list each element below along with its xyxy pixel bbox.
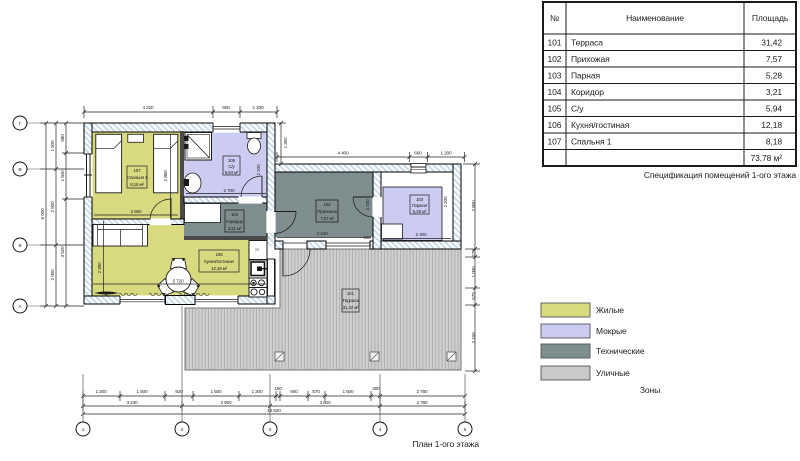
svg-text:2 380: 2 380 <box>97 262 103 274</box>
svg-text:1 200: 1 200 <box>251 389 263 395</box>
svg-text:3 440: 3 440 <box>316 231 328 237</box>
svg-text:2 400: 2 400 <box>415 232 427 238</box>
svg-text:2 200: 2 200 <box>365 199 371 211</box>
svg-text:С/у: С/у <box>571 104 584 114</box>
svg-text:980: 980 <box>60 134 66 142</box>
svg-text:Парная: Парная <box>412 203 428 208</box>
svg-text:Коридор: Коридор <box>226 219 243 224</box>
svg-text:105: 105 <box>228 158 236 163</box>
svg-text:2 000: 2 000 <box>50 269 56 281</box>
svg-text:570: 570 <box>312 389 320 395</box>
svg-text:2 900: 2 900 <box>220 400 232 406</box>
svg-text:2 200: 2 200 <box>443 196 449 208</box>
svg-text:2 200: 2 200 <box>256 164 262 176</box>
svg-text:12,18 м²: 12,18 м² <box>211 266 228 271</box>
svg-text:106: 106 <box>548 120 562 130</box>
svg-text:104: 104 <box>548 87 562 97</box>
svg-text:6 000: 6 000 <box>40 208 46 220</box>
svg-text:5,28: 5,28 <box>766 71 783 81</box>
svg-text:1 200: 1 200 <box>252 105 264 111</box>
svg-text:31,42: 31,42 <box>761 38 782 48</box>
svg-text:12,18: 12,18 <box>761 120 782 130</box>
svg-text:5 720: 5 720 <box>172 279 184 285</box>
svg-text:7,57 м²: 7,57 м² <box>320 216 334 221</box>
svg-text:107: 107 <box>548 137 562 147</box>
svg-text:3 600: 3 600 <box>319 400 331 406</box>
svg-text:3 240: 3 240 <box>126 400 138 406</box>
svg-text:2 780: 2 780 <box>416 389 428 395</box>
svg-text:2 160: 2 160 <box>471 332 477 344</box>
svg-text:С/у: С/у <box>228 164 235 169</box>
svg-text:73,78 м²: 73,78 м² <box>750 153 782 163</box>
svg-text:7,57: 7,57 <box>766 54 783 64</box>
svg-text:2 700: 2 700 <box>223 188 235 194</box>
svg-text:1 500: 1 500 <box>210 389 222 395</box>
svg-text:150: 150 <box>274 386 282 392</box>
svg-text:1 350: 1 350 <box>283 137 289 149</box>
svg-text:2 780: 2 780 <box>416 400 428 406</box>
svg-text:1 500: 1 500 <box>60 170 66 182</box>
svg-text:Зоны: Зоны <box>640 385 660 395</box>
svg-text:104: 104 <box>231 212 239 217</box>
svg-text:Б: Б <box>19 243 22 249</box>
svg-text:900: 900 <box>290 389 298 395</box>
svg-text:3,21: 3,21 <box>766 87 783 97</box>
svg-text:Спальня 1: Спальня 1 <box>571 137 612 147</box>
svg-text:1 200: 1 200 <box>95 389 107 395</box>
svg-text:Прихожая: Прихожая <box>571 54 610 64</box>
svg-text:Кухня/гостиная: Кухня/гостиная <box>204 259 234 264</box>
svg-text:2 800: 2 800 <box>471 200 477 212</box>
svg-text:Спецификация помещений 1-ого э: Спецификация помещений 1-ого этажа <box>644 170 796 180</box>
svg-text:2 500: 2 500 <box>50 201 56 213</box>
svg-text:103: 103 <box>548 71 562 81</box>
svg-text:107: 107 <box>133 168 141 173</box>
svg-text:101: 101 <box>347 291 355 296</box>
svg-text:3 520: 3 520 <box>60 246 66 258</box>
svg-text:101: 101 <box>548 38 562 48</box>
svg-text:Парная: Парная <box>571 71 600 81</box>
svg-text:5,28 м²: 5,28 м² <box>413 209 427 214</box>
svg-text:1 500: 1 500 <box>136 389 148 395</box>
svg-text:1 500: 1 500 <box>342 389 354 395</box>
svg-text:1 500: 1 500 <box>50 140 56 152</box>
svg-text:8,18: 8,18 <box>766 137 783 147</box>
svg-text:4 400: 4 400 <box>337 151 349 157</box>
svg-text:Мокрые: Мокрые <box>596 326 627 336</box>
svg-text:Уличные: Уличные <box>596 368 630 378</box>
svg-text:3,21 м²: 3,21 м² <box>228 226 242 231</box>
svg-text:1 000: 1 000 <box>471 266 477 278</box>
svg-text:В: В <box>19 167 22 173</box>
svg-text:1 200: 1 200 <box>440 151 452 157</box>
svg-text:Площадь: Площадь <box>752 13 789 23</box>
svg-text:275: 275 <box>471 249 477 257</box>
svg-text:Прихожая: Прихожая <box>317 209 337 214</box>
svg-text:4 220: 4 220 <box>142 105 154 111</box>
svg-text:Жилые: Жилые <box>596 305 624 315</box>
svg-text:2 860: 2 860 <box>163 170 169 182</box>
svg-text:Наименование: Наименование <box>626 13 684 23</box>
svg-text:300: 300 <box>372 386 380 392</box>
svg-text:Терраса: Терраса <box>571 38 603 48</box>
svg-text:106: 106 <box>215 252 223 257</box>
svg-text:105: 105 <box>548 104 562 114</box>
svg-text:5,94: 5,94 <box>766 104 783 114</box>
svg-text:103: 103 <box>416 197 424 202</box>
svg-text:31,42 м²: 31,42 м² <box>343 305 360 310</box>
svg-text:102: 102 <box>323 202 331 207</box>
svg-text:Коридор: Коридор <box>571 87 604 97</box>
svg-text:Терраса: Терраса <box>342 298 359 303</box>
svg-text:12 520: 12 520 <box>267 408 281 414</box>
svg-text:Спальня 1: Спальня 1 <box>127 175 148 180</box>
svg-text:Кухня/гостиная: Кухня/гостиная <box>571 120 630 130</box>
svg-text:102: 102 <box>548 54 562 64</box>
svg-text:Технические: Технические <box>596 346 645 356</box>
svg-text:500: 500 <box>363 235 371 241</box>
svg-text:План 1-ого этажа: План 1-ого этажа <box>412 439 479 449</box>
svg-text:2 860: 2 860 <box>130 209 142 215</box>
svg-text:5,94 м²: 5,94 м² <box>225 170 239 175</box>
svg-text:№: № <box>550 13 559 23</box>
svg-text:8,18 м²: 8,18 м² <box>130 182 144 187</box>
svg-text:600: 600 <box>414 151 422 157</box>
svg-text:575: 575 <box>471 292 477 300</box>
svg-text:900: 900 <box>222 105 230 111</box>
